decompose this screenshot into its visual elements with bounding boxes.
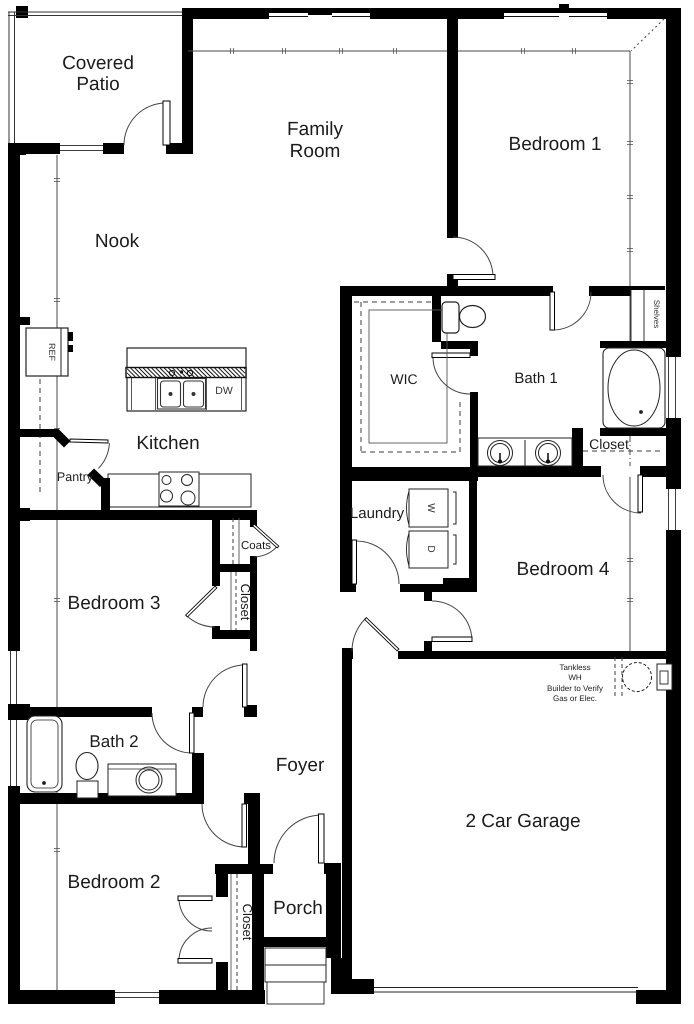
svg-text:Pantry: Pantry bbox=[57, 470, 94, 484]
svg-text:Family: Family bbox=[287, 119, 343, 140]
svg-text:W: W bbox=[425, 503, 436, 513]
svg-text:Coats: Coats bbox=[241, 540, 271, 552]
svg-text:Patio: Patio bbox=[76, 74, 119, 95]
svg-text:Bedroom 1: Bedroom 1 bbox=[509, 134, 602, 155]
svg-text:Porch: Porch bbox=[273, 898, 323, 919]
svg-text:Shelves: Shelves bbox=[652, 300, 661, 328]
svg-text:D: D bbox=[425, 545, 436, 552]
svg-text:Covered: Covered bbox=[62, 53, 134, 74]
svg-text:Nook: Nook bbox=[95, 231, 140, 252]
svg-text:Closet: Closet bbox=[589, 436, 629, 452]
svg-text:Tankless: Tankless bbox=[559, 663, 590, 672]
svg-text:Foyer: Foyer bbox=[276, 755, 325, 776]
svg-text:Builder to Verify: Builder to Verify bbox=[547, 684, 603, 693]
svg-text:Bath 2: Bath 2 bbox=[89, 732, 138, 751]
svg-text:REF: REF bbox=[47, 343, 57, 362]
svg-text:Closet: Closet bbox=[240, 904, 255, 941]
svg-text:Room: Room bbox=[290, 141, 341, 162]
svg-text:Bedroom 4: Bedroom 4 bbox=[517, 559, 610, 580]
svg-text:Gas or Elec.: Gas or Elec. bbox=[553, 694, 597, 703]
svg-text:Bath 1: Bath 1 bbox=[514, 370, 557, 387]
svg-text:Closet: Closet bbox=[238, 584, 253, 621]
svg-text:DW: DW bbox=[215, 385, 233, 397]
svg-text:WIC: WIC bbox=[390, 371, 417, 387]
svg-text:2 Car Garage: 2 Car Garage bbox=[465, 811, 580, 832]
svg-text:Bedroom 2: Bedroom 2 bbox=[68, 872, 161, 893]
svg-text:Kitchen: Kitchen bbox=[136, 433, 199, 454]
svg-text:WH: WH bbox=[568, 673, 582, 682]
svg-text:Laundry: Laundry bbox=[350, 505, 405, 522]
svg-text:Bedroom 3: Bedroom 3 bbox=[68, 593, 161, 614]
